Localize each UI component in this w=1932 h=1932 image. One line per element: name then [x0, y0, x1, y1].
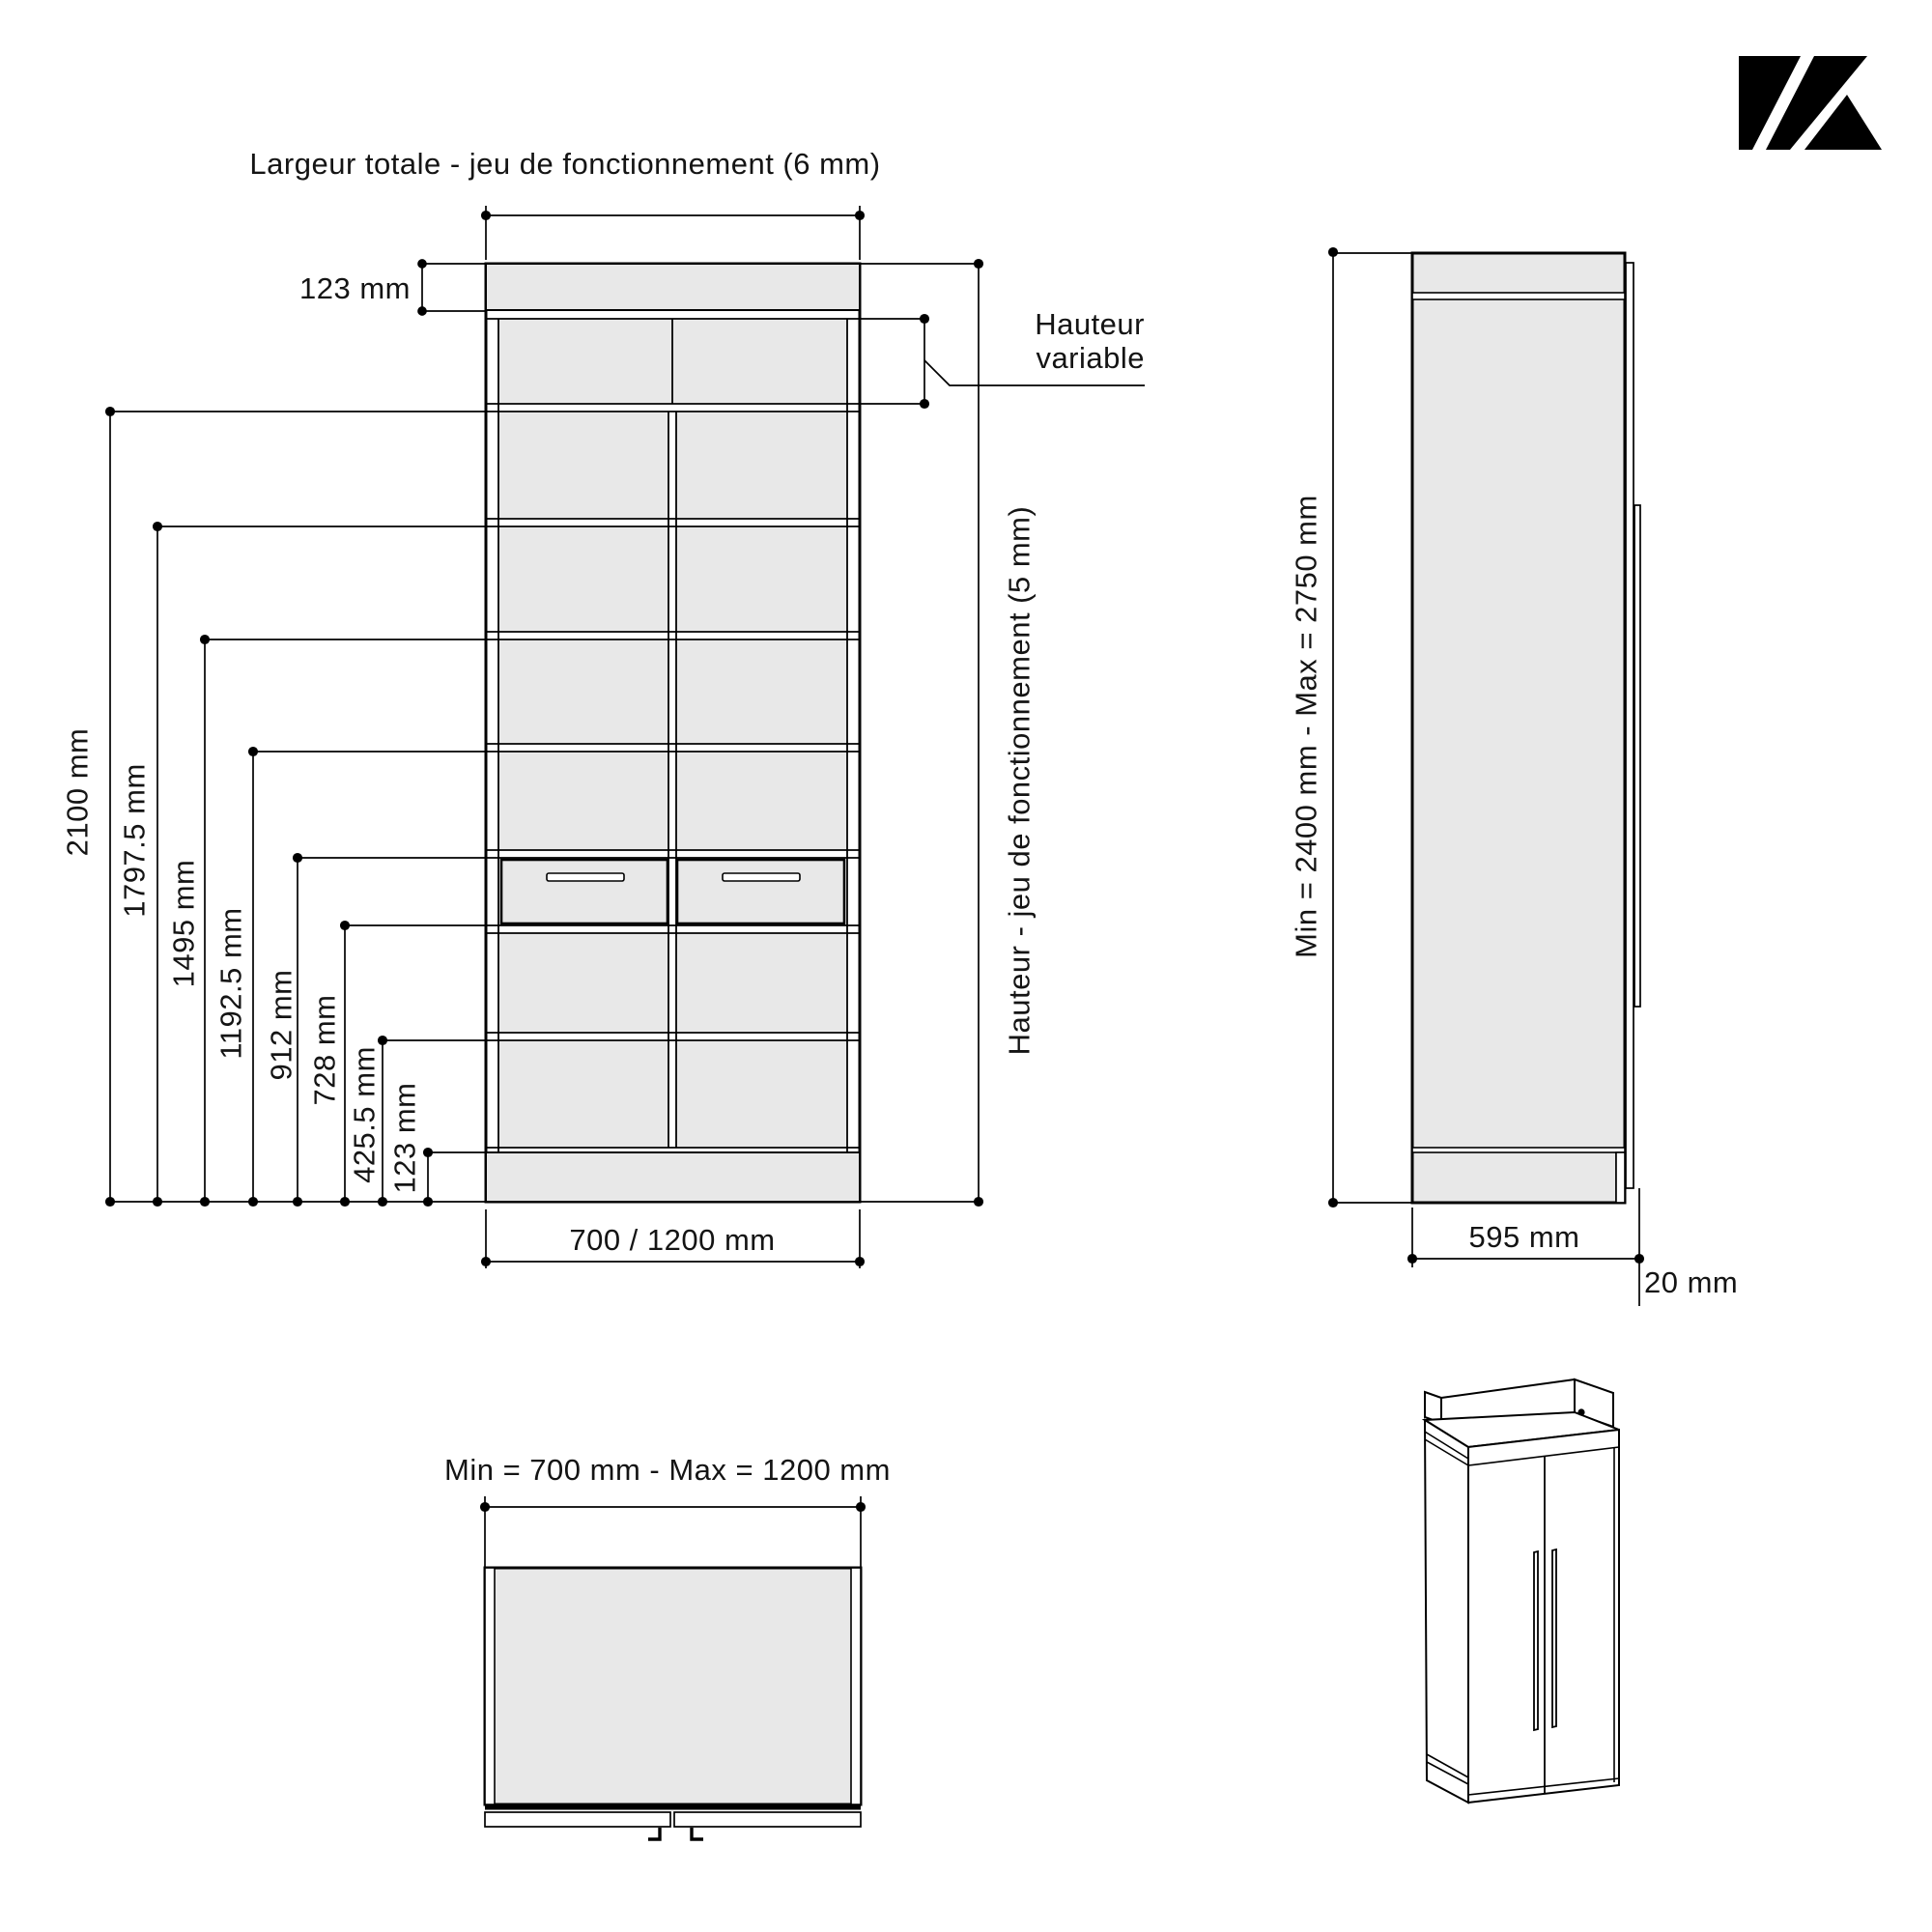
door-handle-plan — [692, 1828, 703, 1839]
variable-height-line1: Hauteur — [985, 307, 1145, 341]
door-right-plan — [674, 1812, 861, 1827]
door-handle-3d — [1534, 1551, 1538, 1730]
right-height-dim-label: Hauteur - jeu de fonctionnement (5 mm) — [1003, 506, 1037, 1056]
side-view — [1412, 253, 1640, 1203]
height-dim-1495: 1495 mm — [167, 860, 201, 988]
height-dim-123: 123 mm — [388, 1083, 422, 1194]
side-depth-label: 595 mm — [1428, 1220, 1621, 1254]
brand-logo-icon — [1739, 56, 1882, 150]
top-view-dimensions — [481, 1496, 865, 1568]
variable-height-label: Hauteur variable — [985, 307, 1145, 375]
front-view-title: Largeur totale - jeu de fonctionnement (… — [179, 147, 952, 181]
height-dim-1192-5: 1192.5 mm — [214, 907, 248, 1059]
door-thickness-label: 20 mm — [1644, 1265, 1799, 1299]
side-handle-profile — [1634, 505, 1640, 1007]
top-view-title: Min = 700 mm - Max = 1200 mm — [426, 1453, 909, 1487]
side-face — [1425, 1420, 1468, 1803]
top-fixing-dot — [1577, 1408, 1584, 1415]
side-height-label: Min = 2400 mm - Max = 2750 mm — [1290, 495, 1323, 958]
back-flange-left — [1425, 1392, 1441, 1423]
drawer-handle-slot — [723, 873, 800, 881]
height-dim-2100: 2100 mm — [61, 728, 95, 857]
height-dim-1797-5: 1797.5 mm — [118, 763, 152, 918]
perspective-view — [1425, 1379, 1619, 1803]
height-dim-912: 912 mm — [265, 970, 298, 1081]
height-dim-728: 728 mm — [308, 995, 342, 1106]
front-face — [1468, 1430, 1619, 1803]
door-handle-plan — [648, 1828, 660, 1839]
door-left-plan — [485, 1812, 670, 1827]
height-dim-425-5: 425.5 mm — [348, 1046, 382, 1183]
top-view — [485, 1568, 861, 1839]
front-view — [486, 264, 924, 1202]
door-handle-3d — [1552, 1549, 1556, 1727]
side-door-panel — [1626, 263, 1634, 1188]
variable-height-line2: variable — [985, 341, 1145, 375]
drawer-handle-slot — [547, 873, 624, 881]
technical-drawing-page: Largeur totale - jeu de fonctionnement (… — [0, 0, 1932, 1932]
top-panel-dim-label: 123 mm — [232, 271, 411, 305]
bottom-width-label: 700 / 1200 mm — [479, 1223, 866, 1257]
